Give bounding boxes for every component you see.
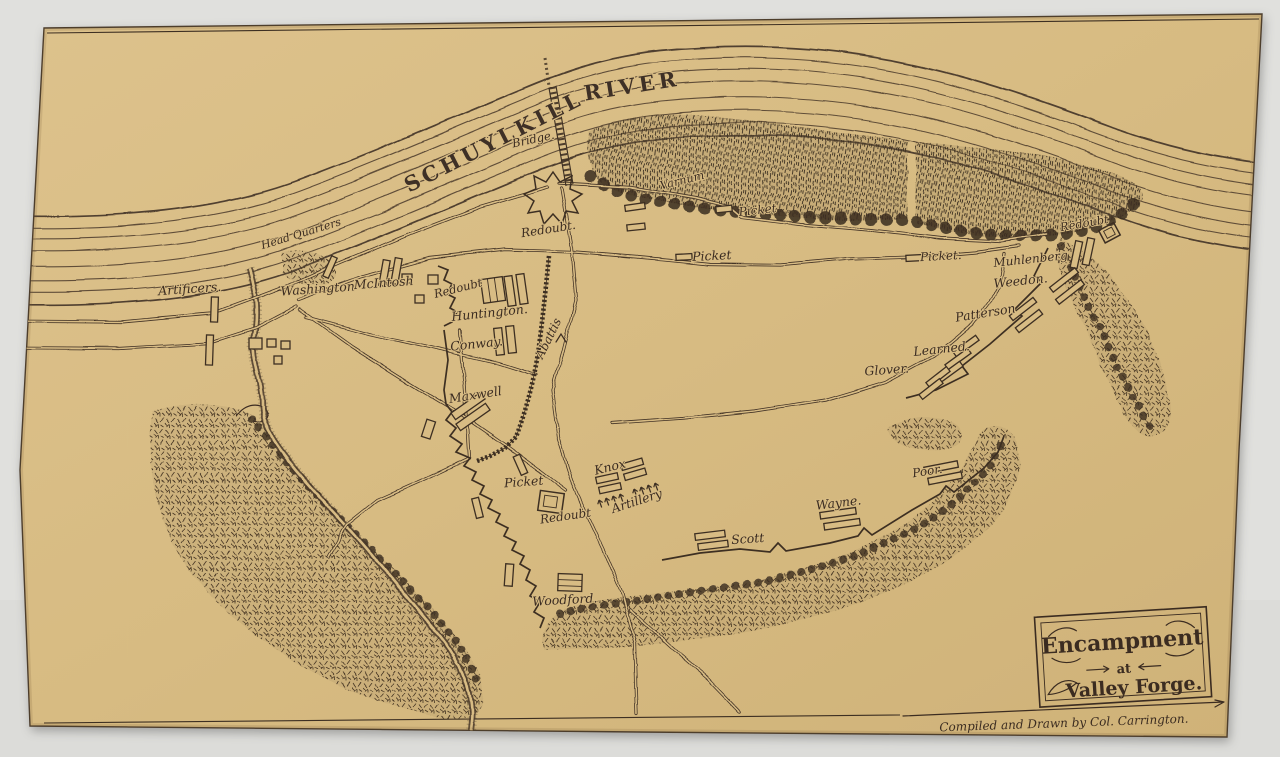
label-picket-north-b: Picket bbox=[691, 247, 733, 264]
title-line2: at bbox=[1116, 661, 1131, 677]
label-picket-center: Picket bbox=[503, 473, 545, 491]
woodford-hatched-block bbox=[558, 574, 583, 592]
huntington-hatched-block bbox=[480, 277, 505, 304]
label-picket-east: Picket. bbox=[919, 248, 962, 264]
antique-map-scan-valley-forge: SCHUYLKILL RIVER Bridge. Head Quarters A… bbox=[0, 0, 1280, 757]
label-scott: Scott bbox=[731, 530, 766, 547]
label-glover: Glover. bbox=[864, 360, 909, 378]
